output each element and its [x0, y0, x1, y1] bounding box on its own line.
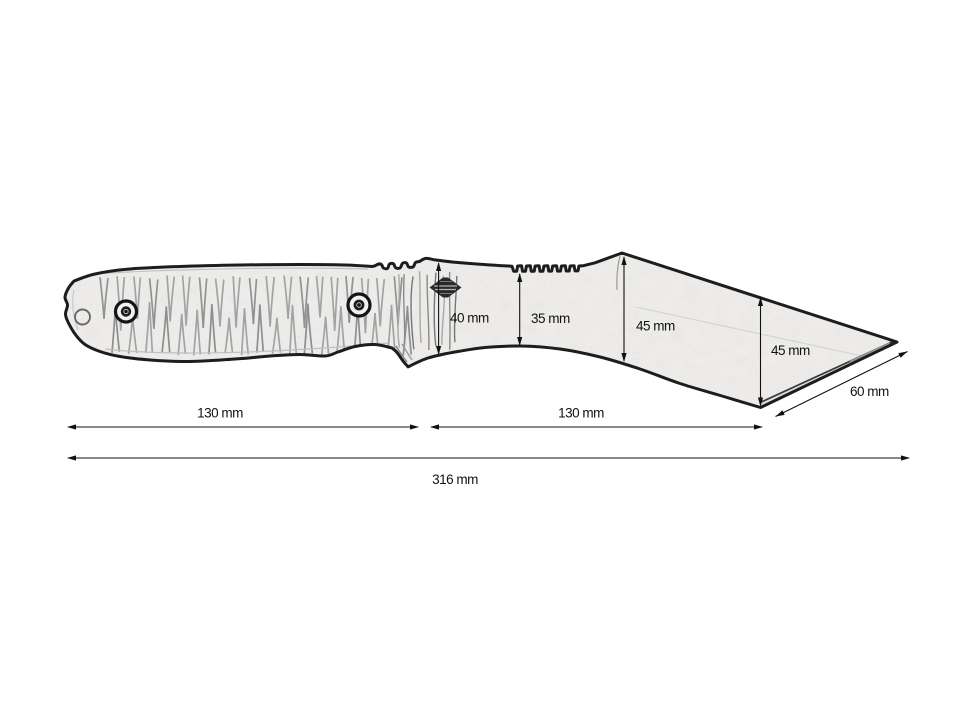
svg-text:316 mm: 316 mm: [432, 472, 478, 487]
svg-text:45 mm: 45 mm: [636, 319, 675, 334]
svg-text:40 mm: 40 mm: [450, 311, 489, 326]
svg-text:130 mm: 130 mm: [197, 406, 243, 421]
svg-text:45 mm: 45 mm: [771, 343, 810, 358]
svg-text:35 mm: 35 mm: [531, 311, 570, 326]
svg-text:60 mm: 60 mm: [850, 384, 889, 399]
svg-text:130 mm: 130 mm: [558, 406, 604, 421]
